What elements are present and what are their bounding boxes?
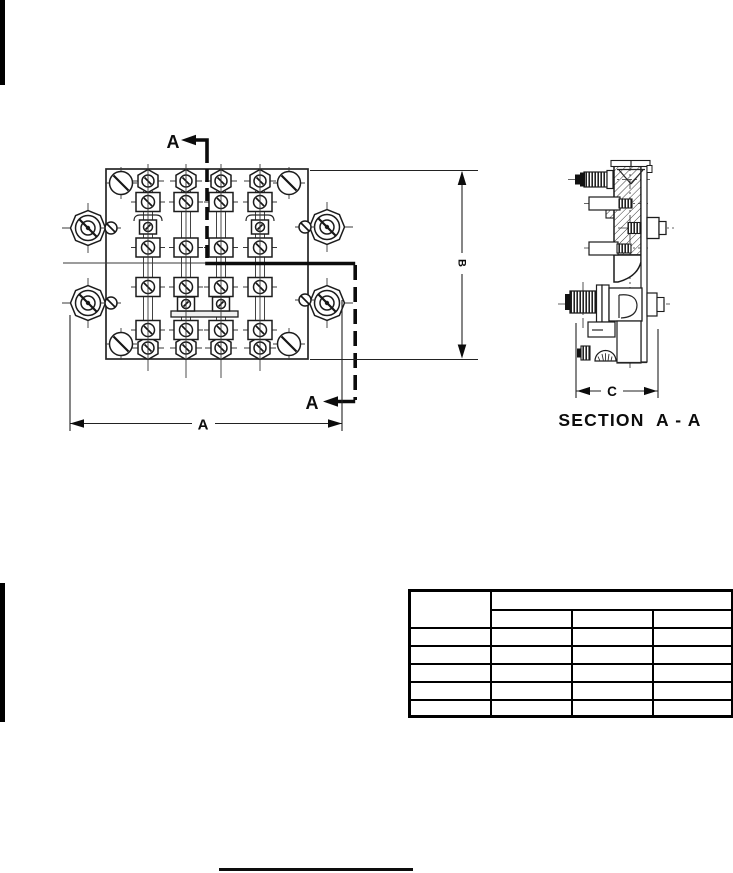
table-cell: [653, 664, 733, 682]
table-column-header: [653, 610, 733, 628]
table-cell: [572, 628, 653, 646]
table-cell: [572, 682, 653, 700]
table-group-header-cell: [491, 591, 733, 610]
engineering-drawing-canvas: A A A B: [0, 0, 733, 873]
table-corner-cell: [410, 591, 491, 628]
table-cell: [491, 628, 572, 646]
table-cell: [410, 664, 491, 682]
section-label-bottom: A: [306, 393, 319, 413]
table-cell: [491, 700, 572, 717]
table-cell: [410, 628, 491, 646]
spec-table: [408, 589, 733, 718]
table-column-header: [572, 610, 653, 628]
table-cell: [572, 646, 653, 664]
table-column-header: [491, 610, 572, 628]
section-view-drawing: C SECTION A - A: [558, 161, 702, 431]
table-cell: [410, 646, 491, 664]
table-cell: [410, 700, 491, 717]
hex-terminal-row-top: [132, 170, 276, 193]
section-arrow-bottom: [323, 396, 338, 406]
table-cell: [572, 700, 653, 717]
table-cell: [491, 682, 572, 700]
dimension-a-label: A: [198, 417, 209, 434]
small-terminal-squares: [140, 220, 269, 311]
table-cell: [491, 664, 572, 682]
dimension-b-label: B: [456, 259, 468, 267]
link-bar: [171, 311, 238, 317]
scanned-manual-page: { "page": { "background": "#ffffff", "in…: [0, 0, 733, 873]
table-cell: [653, 646, 733, 664]
section-caption: SECTION A - A: [558, 410, 701, 430]
section-arrow-top: [181, 135, 196, 145]
table-cell: [653, 682, 733, 700]
table-cell: [410, 682, 491, 700]
section-bottom-adjuster: [577, 346, 616, 361]
dimension-a: A: [70, 300, 342, 434]
table-cell: [653, 700, 733, 717]
dimension-c-label: C: [607, 384, 617, 399]
table-cell: [491, 646, 572, 664]
table-cell: [572, 664, 653, 682]
table-cell: [653, 628, 733, 646]
section-label-top: A: [167, 132, 180, 152]
